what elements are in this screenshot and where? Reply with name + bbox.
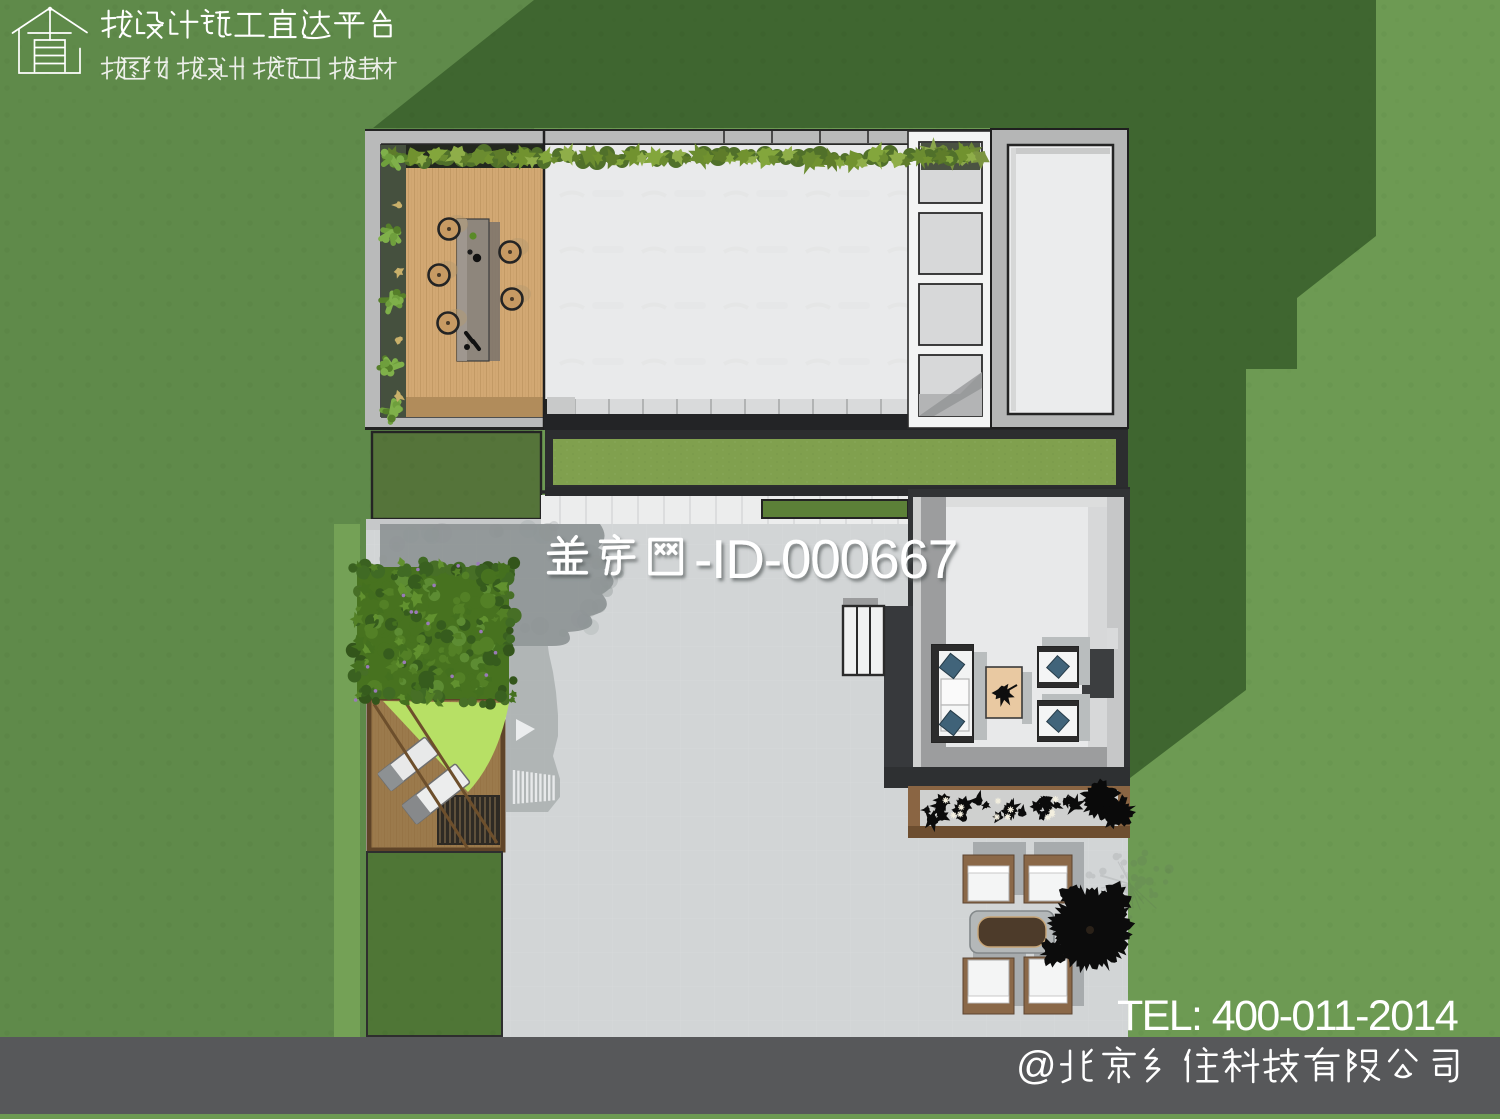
svg-text:-ID-000667: -ID-000667: [694, 528, 957, 590]
svg-text:@: @: [1016, 1044, 1057, 1088]
svg-text:TEL: 400-011-2014: TEL: 400-011-2014: [1117, 992, 1458, 1040]
